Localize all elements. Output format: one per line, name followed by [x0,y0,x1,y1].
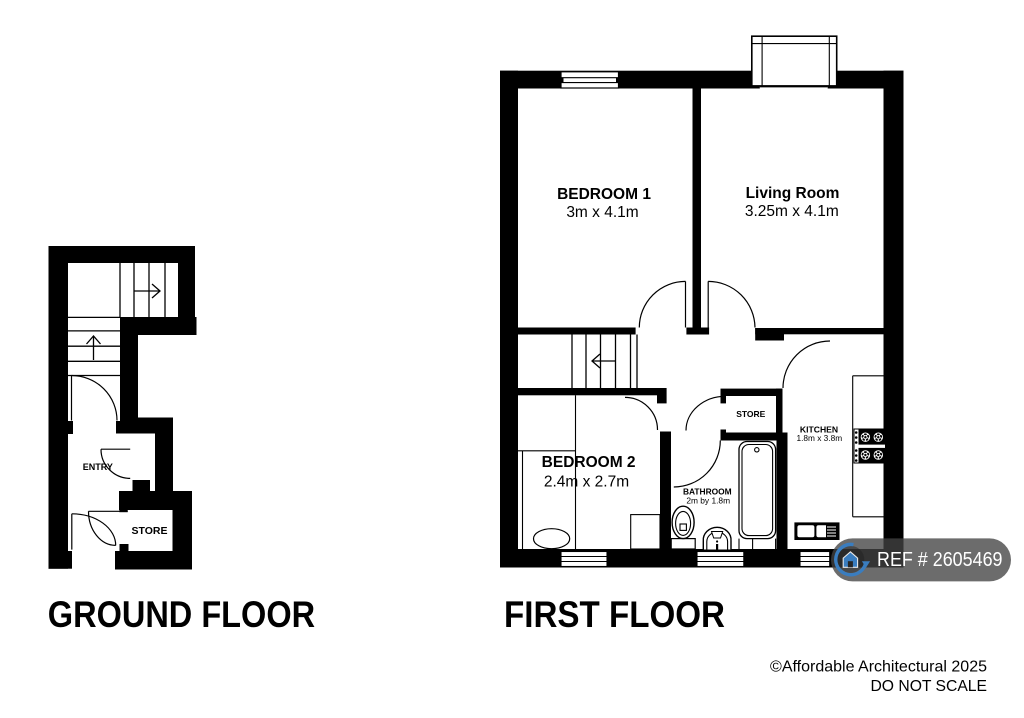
svg-text:GROUND FLOOR: GROUND FLOOR [48,594,315,635]
svg-text:1.8m x 3.8m: 1.8m x 3.8m [796,433,842,443]
svg-text:ENTRY: ENTRY [83,462,113,472]
svg-text:BEDROOM 2: BEDROOM 2 [542,454,636,471]
svg-text:STORE: STORE [132,525,168,537]
svg-text:©Affordable Architectural 2025: ©Affordable Architectural 2025 [770,658,987,675]
svg-text:DO NOT SCALE: DO NOT SCALE [870,678,987,695]
svg-text:REF # 2605469: REF # 2605469 [877,548,1003,571]
svg-text:3.25m x 4.1m: 3.25m x 4.1m [745,203,839,220]
svg-text:Living Room: Living Room [746,185,840,202]
svg-text:FIRST FLOOR: FIRST FLOOR [504,594,725,635]
svg-text:BEDROOM 1: BEDROOM 1 [557,186,651,203]
svg-text:2m by 1.8m: 2m by 1.8m [686,495,730,505]
svg-text:STORE: STORE [736,409,765,419]
svg-text:3m x 4.1m: 3m x 4.1m [566,204,638,221]
svg-text:2.4m x 2.7m: 2.4m x 2.7m [544,473,629,490]
